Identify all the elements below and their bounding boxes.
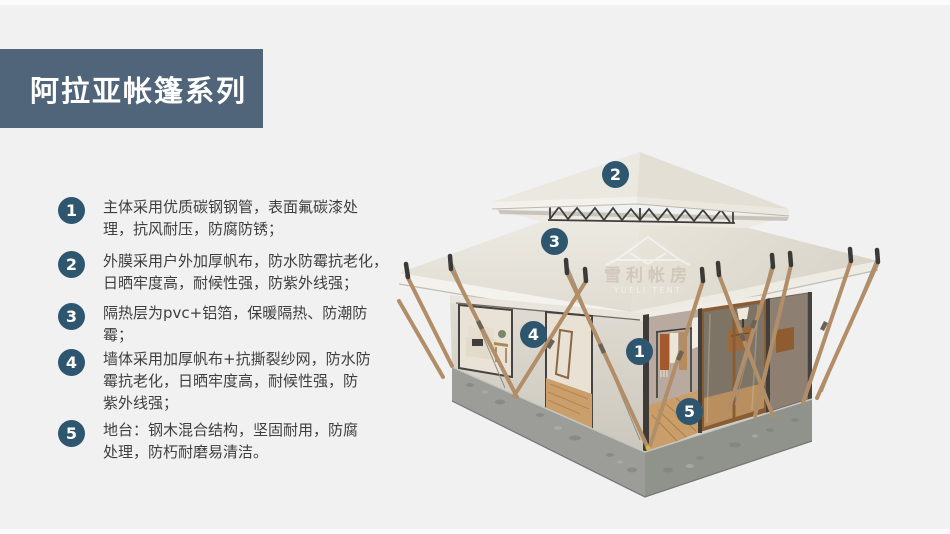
watermark-en-text: YUELI TENT [613, 286, 682, 295]
watermark-cn-text: 雪利帐房 [604, 265, 692, 286]
tent-illustration: 雪利帐房 YUELI TENT [0, 0, 950, 534]
corner-post [643, 314, 649, 452]
tent-marker-4: 4 [520, 321, 547, 348]
bottom-strip [0, 529, 950, 534]
tent-marker-3: 3 [541, 228, 568, 255]
tent-marker-2: 2 [602, 161, 629, 188]
tent-marker-1: 1 [626, 338, 653, 365]
side-panel [768, 293, 808, 412]
page: 阿拉亚帐篷系列 1 主体采用优质碳钢钢管，表面氟碳漆处 理，抗风耐压，防腐防锈；… [0, 0, 950, 534]
corner-anchor [646, 446, 651, 451]
tent-marker-5: 5 [676, 398, 703, 425]
dresser [776, 327, 794, 353]
plant [498, 330, 506, 338]
